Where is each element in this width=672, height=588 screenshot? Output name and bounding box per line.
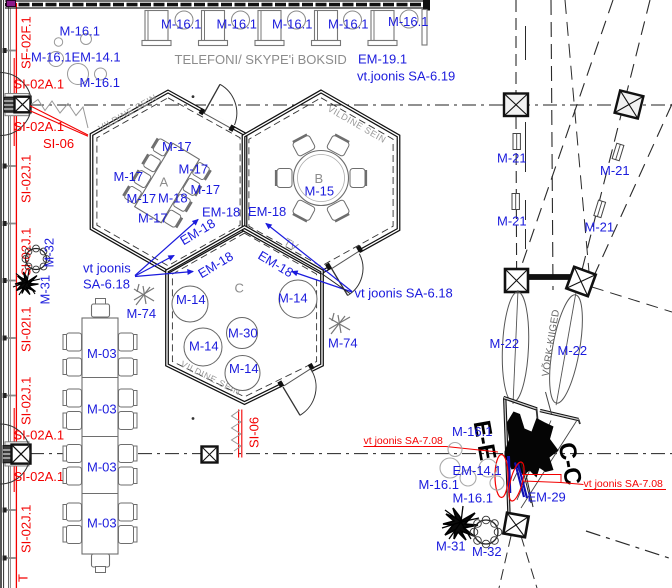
svg-text:SI-02A.1: SI-02A.1 [14, 428, 65, 443]
svg-text:M-17: M-17 [179, 162, 209, 177]
svg-text:M-16.1EM-14.1: M-16.1EM-14.1 [31, 50, 121, 65]
svg-text:M-14: M-14 [278, 291, 308, 306]
svg-text:TELEFONI/ SKYPE'i BOKSID: TELEFONI/ SKYPE'i BOKSID [175, 52, 347, 67]
svg-text:M-31: M-31 [38, 275, 53, 305]
svg-text:SI-02A.1: SI-02A.1 [14, 469, 65, 484]
svg-text:M-32: M-32 [472, 544, 502, 559]
svg-text:M-31: M-31 [436, 539, 466, 554]
svg-text:vt joonis SA-7.08: vt joonis SA-7.08 [584, 478, 664, 490]
svg-text:M-03: M-03 [87, 516, 117, 531]
svg-text:M-17: M-17 [138, 211, 168, 226]
svg-text:M-16.1: M-16.1 [217, 17, 257, 32]
svg-text:M-17: M-17 [162, 139, 192, 154]
svg-text:M-17: M-17 [114, 169, 144, 184]
svg-text:SA-6.18: SA-6.18 [83, 277, 130, 292]
svg-text:M-74: M-74 [328, 336, 358, 351]
svg-text:M-17: M-17 [191, 182, 221, 197]
svg-text:M-16.1: M-16.1 [60, 24, 100, 39]
svg-text:vt joonis: vt joonis [83, 261, 131, 276]
svg-text:SI-02A.1: SI-02A.1 [14, 119, 65, 134]
svg-text:T: T [16, 574, 31, 582]
svg-text:M-21: M-21 [497, 214, 527, 229]
svg-text:M-15: M-15 [305, 184, 335, 199]
svg-text:vt joonis SA-6.18: vt joonis SA-6.18 [355, 286, 453, 301]
svg-text:SI-02J.1: SI-02J.1 [19, 377, 34, 425]
svg-text:M-30: M-30 [228, 326, 258, 341]
svg-text:SI-02J.1: SI-02J.1 [19, 155, 34, 203]
svg-text:M-21: M-21 [585, 220, 615, 235]
svg-text:M-32: M-32 [42, 238, 57, 268]
svg-text:M-74: M-74 [127, 306, 157, 321]
svg-text:M-16.1: M-16.1 [452, 424, 492, 439]
svg-text:M-16.1: M-16.1 [161, 17, 201, 32]
svg-text:EM-29: EM-29 [528, 490, 566, 505]
svg-text:A: A [160, 175, 169, 190]
svg-text:M-16.1: M-16.1 [272, 17, 312, 32]
svg-text:SI-02A.1: SI-02A.1 [14, 77, 65, 92]
svg-text:M-14: M-14 [229, 361, 259, 376]
svg-text:SI-06: SI-06 [43, 136, 74, 151]
svg-text:M-14: M-14 [176, 292, 206, 307]
svg-text:SI-02I.1: SI-02I.1 [19, 306, 34, 352]
svg-text:M-03: M-03 [87, 402, 117, 417]
svg-text:M-16.1: M-16.1 [328, 17, 368, 32]
svg-text:M-03: M-03 [87, 460, 117, 475]
svg-text:M-22: M-22 [490, 336, 520, 351]
svg-text:vt.joonis SA-6.19: vt.joonis SA-6.19 [357, 69, 455, 84]
svg-text:EM-14.1: EM-14.1 [453, 463, 502, 478]
svg-text:M-14: M-14 [189, 339, 219, 354]
svg-text:M-03: M-03 [87, 346, 117, 361]
svg-text:SI-02J.1: SI-02J.1 [19, 505, 34, 553]
svg-text:M-16.1: M-16.1 [80, 75, 120, 90]
svg-text:M-16.1: M-16.1 [453, 491, 493, 506]
svg-text:M-18: M-18 [158, 191, 188, 206]
svg-text:SI-06: SI-06 [247, 417, 262, 448]
svg-text:M-17: M-17 [127, 191, 157, 206]
svg-text:M-16.1: M-16.1 [388, 14, 428, 29]
svg-text:M-21: M-21 [600, 163, 630, 178]
svg-text:C: C [235, 281, 244, 296]
svg-text:vt joonis SA-7.08: vt joonis SA-7.08 [364, 435, 444, 447]
svg-text:M-21: M-21 [497, 151, 527, 166]
svg-text:EM-19.1: EM-19.1 [358, 52, 407, 67]
svg-text:EM-18: EM-18 [248, 204, 286, 219]
svg-text:M-22: M-22 [558, 343, 588, 358]
